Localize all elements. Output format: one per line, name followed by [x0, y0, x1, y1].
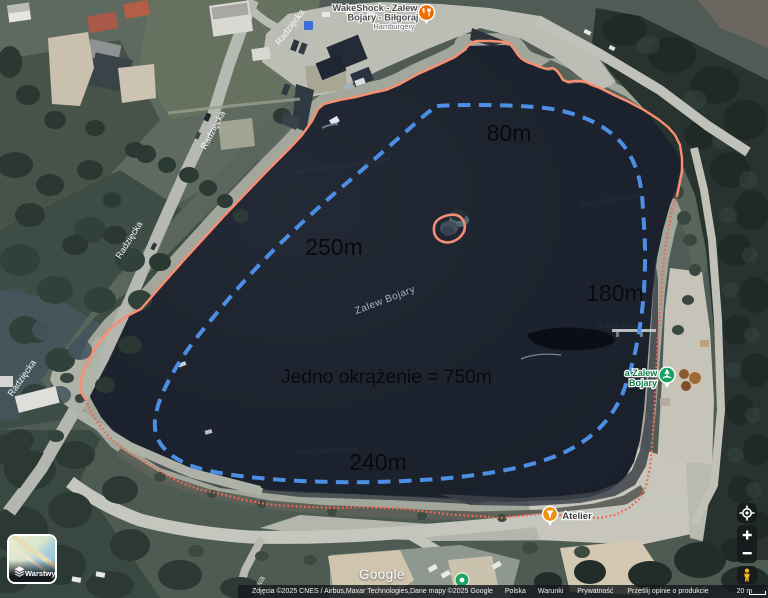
svg-text:© 2025 Maxar: © 2025 Maxar	[598, 322, 640, 330]
svg-text:Bojary - Biłgoraj: Bojary - Biłgoraj	[348, 13, 419, 23]
svg-text:240m: 240m	[349, 449, 407, 475]
svg-text:Hamburgery: Hamburgery	[373, 22, 415, 31]
svg-text:80m: 80m	[487, 120, 532, 146]
svg-text:180m: 180m	[586, 280, 644, 306]
svg-text:WakeShock - Zalew: WakeShock - Zalew	[333, 3, 419, 13]
svg-text:a Zalew: a Zalew	[625, 368, 659, 378]
svg-text:250m: 250m	[305, 234, 363, 260]
svg-text:Atelier: Atelier	[562, 511, 592, 522]
svg-text:Bojary: Bojary	[629, 378, 657, 388]
svg-text:Jedno okrążenie = 750m: Jedno okrążenie = 750m	[281, 366, 492, 388]
